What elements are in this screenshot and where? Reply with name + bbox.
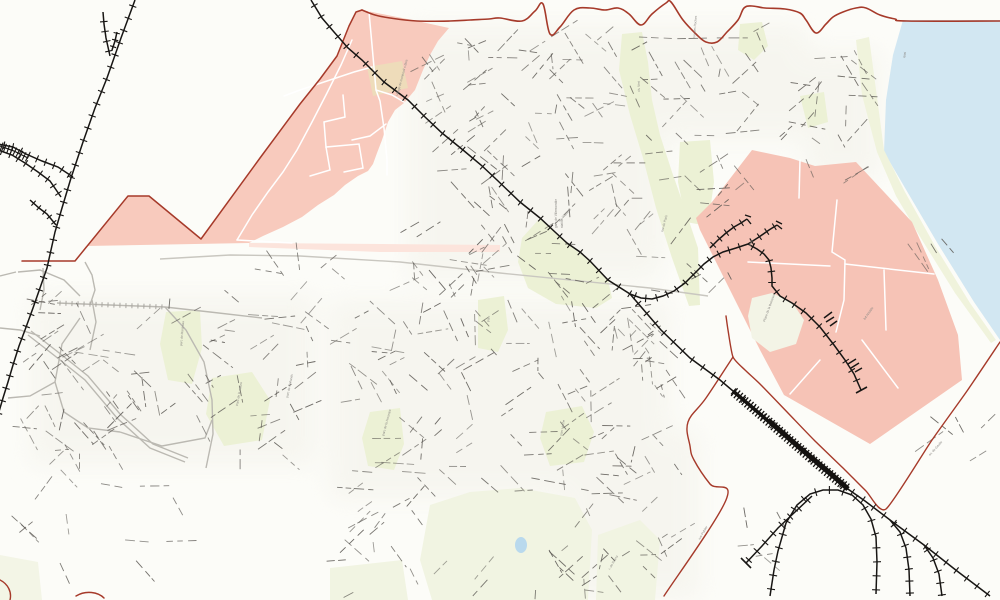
svg-text:gare de Villemomble: gare de Villemomble	[554, 199, 558, 228]
svg-text:ch. Vert: ch. Vert	[637, 81, 641, 92]
svg-text:station: station	[560, 218, 564, 228]
